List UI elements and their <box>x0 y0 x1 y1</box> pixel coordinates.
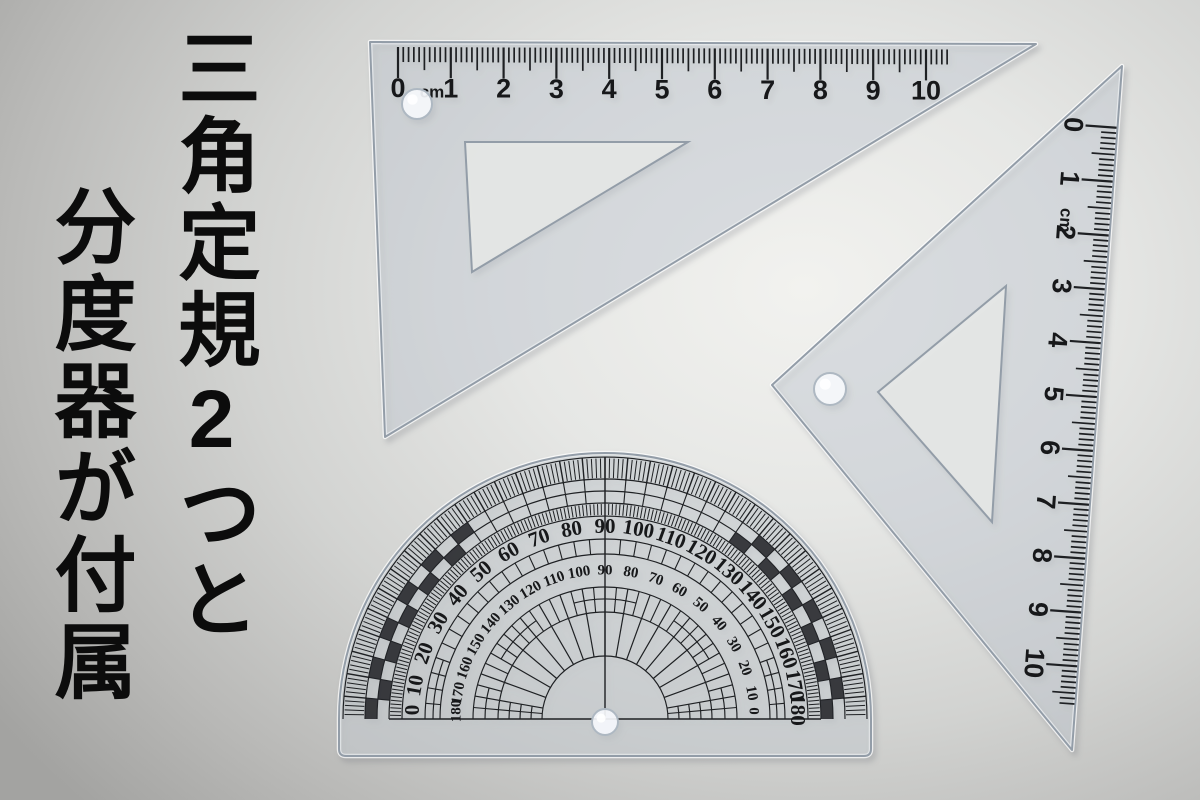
pin-hole <box>814 373 846 405</box>
cm-label: 6 <box>1034 439 1065 456</box>
degree-label-inner: 90 <box>598 562 613 578</box>
pin-hole <box>592 709 618 735</box>
cm-label: 7 <box>1030 493 1061 510</box>
unit-label: cm <box>1055 207 1076 233</box>
cm-label: 4 <box>1042 332 1073 349</box>
degree-label-outer: 90 <box>595 514 616 538</box>
pin-hole <box>402 89 432 119</box>
cm-label: 8 <box>1027 547 1058 564</box>
degree-label-inner: 80 <box>622 564 640 582</box>
cm-label: 5 <box>654 74 669 104</box>
geometry-tools-photo: 012345678910cm 012345678910cm 0102030405… <box>0 0 1200 800</box>
cm-label: 9 <box>1023 601 1054 618</box>
degree-label-outer: 80 <box>559 515 584 542</box>
cm-label: 1 <box>443 73 458 103</box>
cm-label: 10 <box>1018 647 1050 679</box>
cm-label: 3 <box>1046 278 1077 295</box>
degree-label-outer: 10 <box>401 673 428 698</box>
cm-label: 9 <box>866 75 881 105</box>
degree-label-inner: 10 <box>742 684 760 702</box>
cm-label: 3 <box>549 74 564 104</box>
degree-label-inner: 0 <box>746 707 762 715</box>
degree-label-outer: 180 <box>786 694 810 726</box>
cm-label: 8 <box>813 75 828 105</box>
degree-label-outer: 0 <box>400 705 424 716</box>
cm-label: 7 <box>760 75 775 105</box>
cm-label: 4 <box>602 74 617 104</box>
protractor: 0102030405060708090100110120130140150160… <box>339 453 871 756</box>
cm-label: 0 <box>1058 116 1089 133</box>
cm-label: 10 <box>911 76 941 106</box>
cm-label: 6 <box>707 75 722 105</box>
cm-label: 1 <box>1054 170 1085 187</box>
photo-background: 三角定規2つと 分度器が付属 012345678910cm 0123456789… <box>0 0 1200 800</box>
cm-label: 2 <box>496 74 511 104</box>
cm-label: 5 <box>1038 385 1069 402</box>
